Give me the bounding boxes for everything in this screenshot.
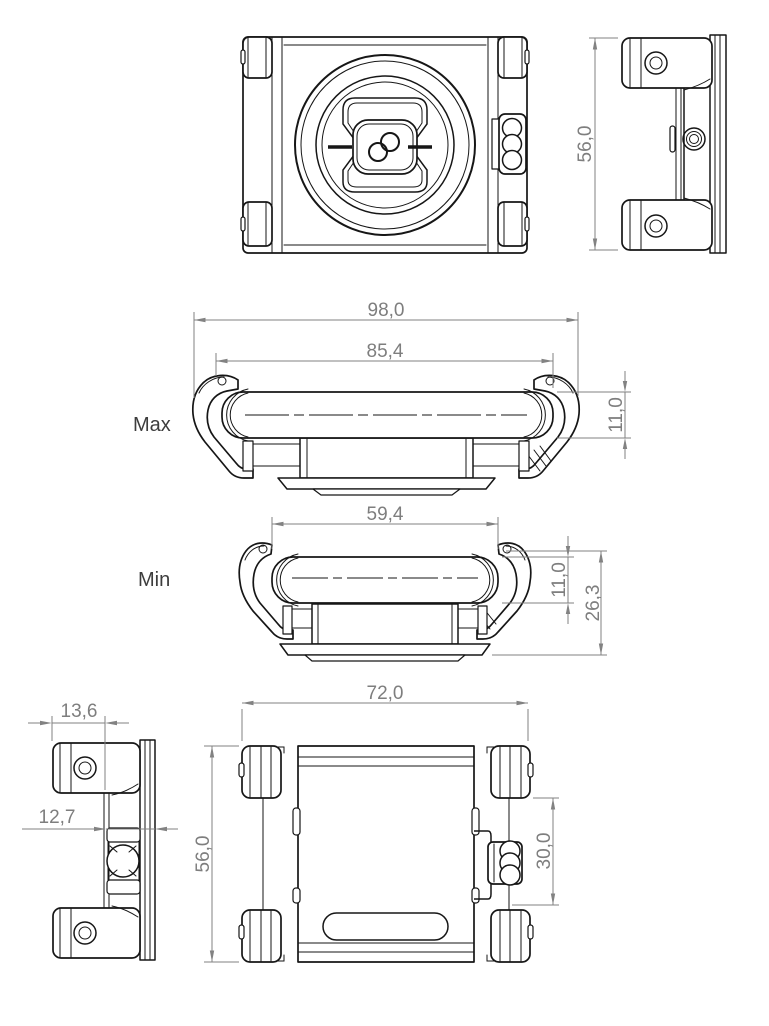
dim-knob-cutout-height-text: 30,0: [534, 833, 555, 870]
dim-arm-block-width-text: 13,6: [61, 701, 98, 722]
dim-back-width: 72,0: [242, 683, 528, 741]
dim-max-cradle-height-text: 11,0: [606, 397, 627, 433]
mount-base: [280, 644, 490, 655]
dim-max-opening-width: 85,4: [216, 341, 553, 388]
dim-min-opening-width: 59,4: [272, 504, 498, 549]
thumb-knob-side: [474, 831, 522, 899]
phone-mount-drawing: 56,0 Max 98,0 85,4 11,: [0, 0, 769, 1026]
dim-min-cradle-height-text: 11,0: [549, 562, 570, 598]
side-view-bottom: [53, 740, 155, 960]
technical-drawing-page: 56,0 Max 98,0 85,4 11,: [0, 0, 769, 1026]
dim-side-height-text: 56,0: [575, 126, 596, 163]
front-view: [241, 37, 529, 253]
max-view: [193, 375, 579, 495]
dim-max-opening-width-text: 85,4: [367, 341, 404, 362]
min-view: [239, 543, 531, 661]
dim-back-height-text: 56,0: [193, 836, 214, 873]
back-view: [239, 746, 533, 962]
dim-back-height: 56,0: [193, 746, 239, 962]
label-min: Min: [138, 569, 170, 591]
dim-min-overall-height-text: 26,3: [583, 585, 604, 622]
min-cradle: [272, 557, 498, 603]
label-max: Max: [133, 414, 171, 436]
detent-knob: [107, 828, 140, 894]
dim-mount-depth-text: 12,7: [39, 807, 76, 828]
dim-side-height: 56,0: [575, 38, 618, 250]
thumb-knob: [492, 114, 526, 174]
dim-max-overall-width-text: 98,0: [368, 300, 405, 321]
strap-slot: [323, 913, 448, 940]
dim-min-opening-width-text: 59,4: [367, 504, 404, 525]
mount-base: [278, 478, 495, 489]
side-view-top: [622, 35, 726, 253]
dim-back-width-text: 72,0: [367, 683, 404, 704]
